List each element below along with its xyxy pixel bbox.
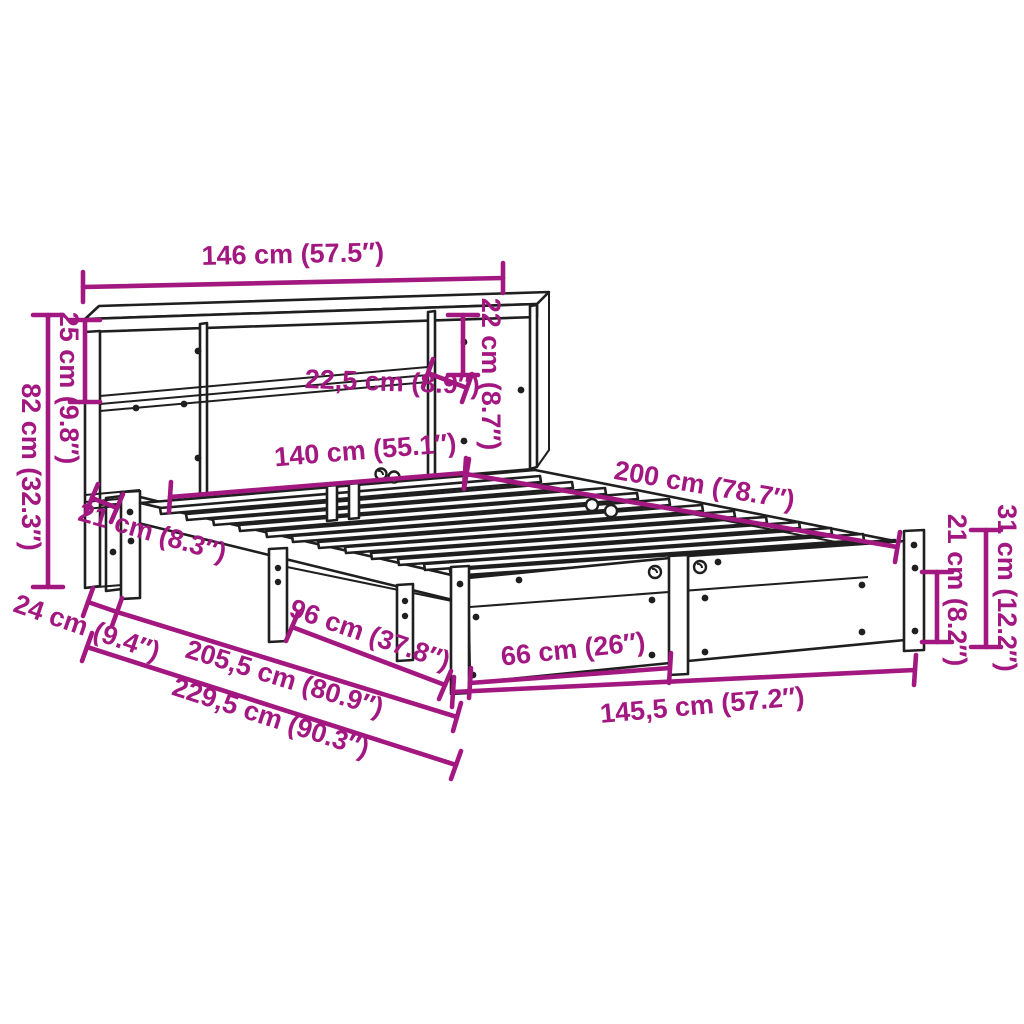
dimension-shelf-depth: 22,5 cm (8.9″) xyxy=(304,359,480,402)
dimension-label-rail-height: 21 cm (8.2″) xyxy=(942,514,972,667)
diagram-canvas: 146 cm (57.5″) 25 cm (9.8″) 82 cm (32.3″… xyxy=(0,0,1024,1024)
dimension-label-headboard-width: 146 cm (57.5″) xyxy=(201,237,384,271)
dimension-leg-height: 31 cm (12.2″) xyxy=(971,504,1022,672)
dimension-rail-height: 21 cm (8.2″) xyxy=(922,514,972,667)
dimension-label-shelf-depth: 22,5 cm (8.9″) xyxy=(304,364,480,400)
dimension-label-frame-width: 145,5 cm (57.2″) xyxy=(599,681,806,729)
product-dimension-diagram: 146 cm (57.5″) 25 cm (9.8″) 82 cm (32.3″… xyxy=(0,0,1024,1024)
dimension-label-compartment-height: 22 cm (8.7″) xyxy=(476,298,506,451)
dimension-label-leg-height: 31 cm (12.2″) xyxy=(992,504,1022,672)
dimension-headboard-width: 146 cm (57.5″) xyxy=(83,237,503,302)
dimension-label-headboard-height: 82 cm (32.3″) xyxy=(16,383,46,551)
dimension-headboard-depth: 24 cm (9.4″) xyxy=(10,588,164,667)
dimension-label-top-shelf-height: 25 cm (9.8″) xyxy=(54,312,84,465)
